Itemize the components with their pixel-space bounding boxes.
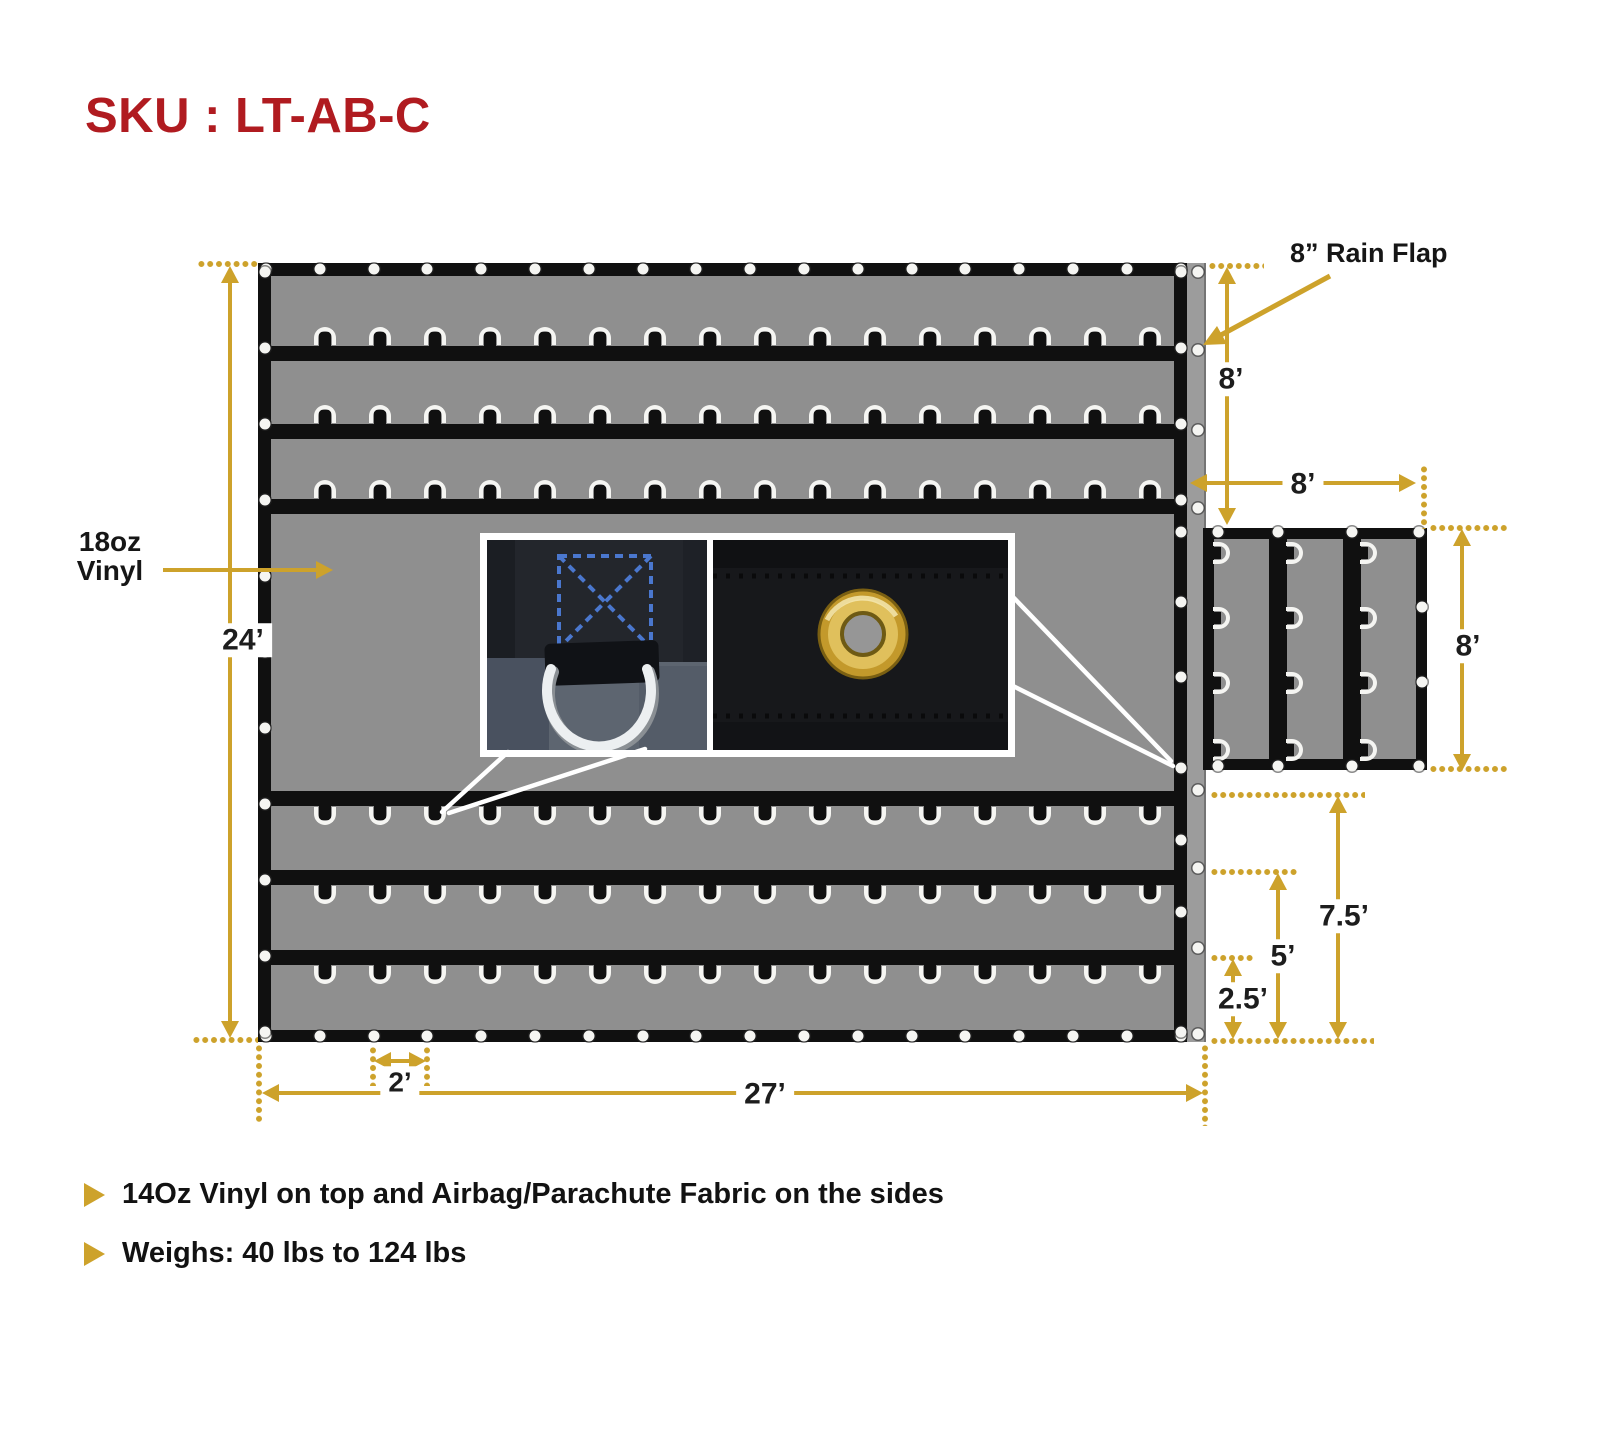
grommet-hole <box>842 613 884 655</box>
material-label-line1: 18oz <box>58 527 162 556</box>
dim-25-label: 2.5’ <box>1210 982 1276 1016</box>
dim-ref-dotted <box>1208 262 1264 270</box>
panel-cell <box>1287 539 1342 759</box>
dim-75-arrow-down-icon <box>1329 1022 1347 1039</box>
dim-flap-line <box>1225 282 1229 512</box>
d-ring-photo <box>487 540 707 750</box>
tarp-band <box>271 361 1174 424</box>
rain-flap-pointer-arrowhead-icon <box>1203 326 1227 345</box>
dim-24-label: 24’ <box>214 623 272 657</box>
dim-sidew-label: 8’ <box>1282 467 1323 501</box>
fabric-shade <box>713 722 1008 750</box>
dim-24-arrow-up-icon <box>221 266 239 283</box>
strap-loop <box>544 640 659 686</box>
dim-sideh-arrow-down-icon <box>1453 754 1471 771</box>
dim-25-arrow-up-icon <box>1224 959 1242 976</box>
dim-ref-dotted <box>1420 465 1428 529</box>
dim-75-arrow-up-icon <box>1329 796 1347 813</box>
page-title: SKU : LT-AB-C <box>85 88 431 144</box>
product-spec-sheet: SKU : LT-AB-C <box>0 0 1600 1440</box>
closeup-inset <box>480 533 1015 757</box>
side-flap-panel <box>1203 528 1427 770</box>
bullet-text: 14Oz Vinyl on top and Airbag/Parachute F… <box>122 1178 944 1211</box>
dim-5-label: 5’ <box>1262 939 1303 973</box>
footer-notes: 14Oz Vinyl on top and Airbag/Parachute F… <box>84 1178 944 1296</box>
grommet-photo <box>713 540 1008 750</box>
dim-27-label: 27’ <box>736 1077 794 1111</box>
material-label: 18oz Vinyl <box>58 527 162 585</box>
bullet-item: 14Oz Vinyl on top and Airbag/Parachute F… <box>84 1178 944 1211</box>
bullet-text: Weighs: 40 lbs to 124 lbs <box>122 1237 466 1270</box>
rain-flap-pointer-line <box>1221 276 1330 335</box>
dim-flap-label: 8’ <box>1210 362 1251 396</box>
dim-5-arrow-up-icon <box>1269 873 1287 890</box>
dim-27-arrow-right-icon <box>1186 1084 1203 1102</box>
dim-sidew-arrow-right-icon <box>1399 474 1416 492</box>
dim-2-label: 2’ <box>380 1066 419 1097</box>
tarp-band <box>271 439 1174 499</box>
tarp-band <box>271 276 1174 346</box>
bullet-arrow-icon <box>84 1242 105 1266</box>
tarp-band <box>271 885 1174 950</box>
dim-5-arrow-down-icon <box>1269 1022 1287 1039</box>
bullet-arrow-icon <box>84 1183 105 1207</box>
material-pointer-arrowhead-icon <box>316 561 333 579</box>
vinyl-shade <box>487 658 549 750</box>
tarp-band <box>271 806 1174 870</box>
dim-flap-arrow-down-icon <box>1218 508 1236 525</box>
tarp-band <box>271 965 1174 1030</box>
material-label-line2: Vinyl <box>58 556 162 585</box>
panel-cell <box>1214 539 1269 759</box>
dim-2-line <box>390 1059 410 1063</box>
dim-sideh-label: 8’ <box>1447 629 1488 663</box>
bullet-item: Weighs: 40 lbs to 124 lbs <box>84 1237 944 1270</box>
dim-24-arrow-down-icon <box>221 1021 239 1038</box>
fabric-shade <box>713 540 1008 568</box>
dim-27-arrow-left-icon <box>262 1084 279 1102</box>
dim-25-arrow-down-icon <box>1224 1022 1242 1039</box>
dim-sidew-arrow-left-icon <box>1190 474 1207 492</box>
dim-sideh-arrow-up-icon <box>1453 529 1471 546</box>
rain-flap-label: 8” Rain Flap <box>1290 238 1448 269</box>
panel-cell <box>1361 539 1416 759</box>
material-pointer-line <box>163 568 317 572</box>
dim-75-label: 7.5’ <box>1311 899 1377 933</box>
dim-flap-arrow-up-icon <box>1218 267 1236 284</box>
